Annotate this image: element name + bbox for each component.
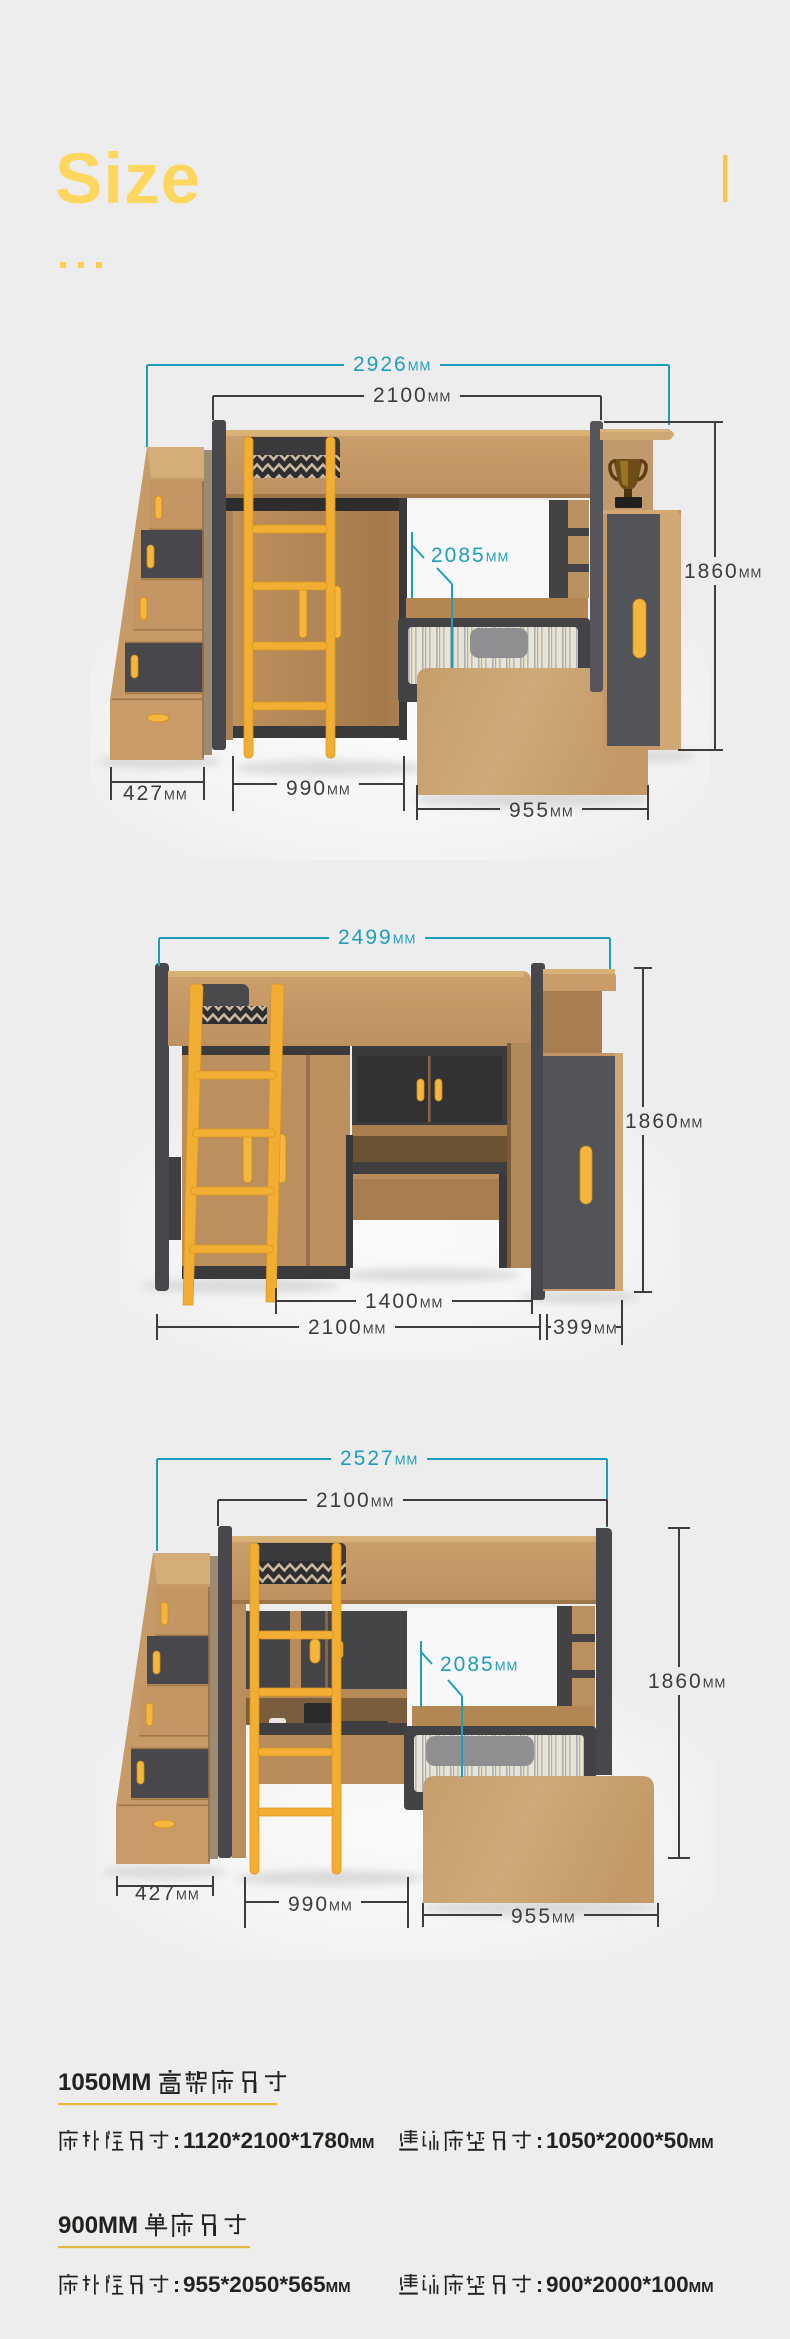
svg-text:1050*2000*50MM: 1050*2000*50MM: [546, 2128, 714, 2153]
svg-text::: :: [536, 2274, 543, 2297]
svg-text::: :: [173, 2130, 180, 2153]
svg-text:1120*2100*1780MM: 1120*2100*1780MM: [183, 2128, 374, 2153]
svg-text:2100MM: 2100MM: [316, 1489, 394, 1512]
svg-text:1860MM: 1860MM: [684, 560, 762, 583]
svg-text:Size: Size: [55, 140, 201, 219]
svg-text:2100MM: 2100MM: [373, 384, 451, 407]
svg-text:2499MM: 2499MM: [338, 926, 416, 949]
svg-text:2527MM: 2527MM: [340, 1447, 418, 1470]
svg-text:1860MM: 1860MM: [625, 1110, 703, 1133]
svg-text:955*2050*565MM: 955*2050*565MM: [183, 2272, 351, 2297]
svg-text::: :: [173, 2274, 180, 2297]
svg-text:900*2000*100MM: 900*2000*100MM: [546, 2272, 714, 2297]
svg-text:2926MM: 2926MM: [353, 353, 431, 376]
svg-text:1050MM: 1050MM: [58, 2069, 151, 2096]
svg-text::: :: [536, 2130, 543, 2153]
svg-text:900MM: 900MM: [58, 2212, 138, 2239]
